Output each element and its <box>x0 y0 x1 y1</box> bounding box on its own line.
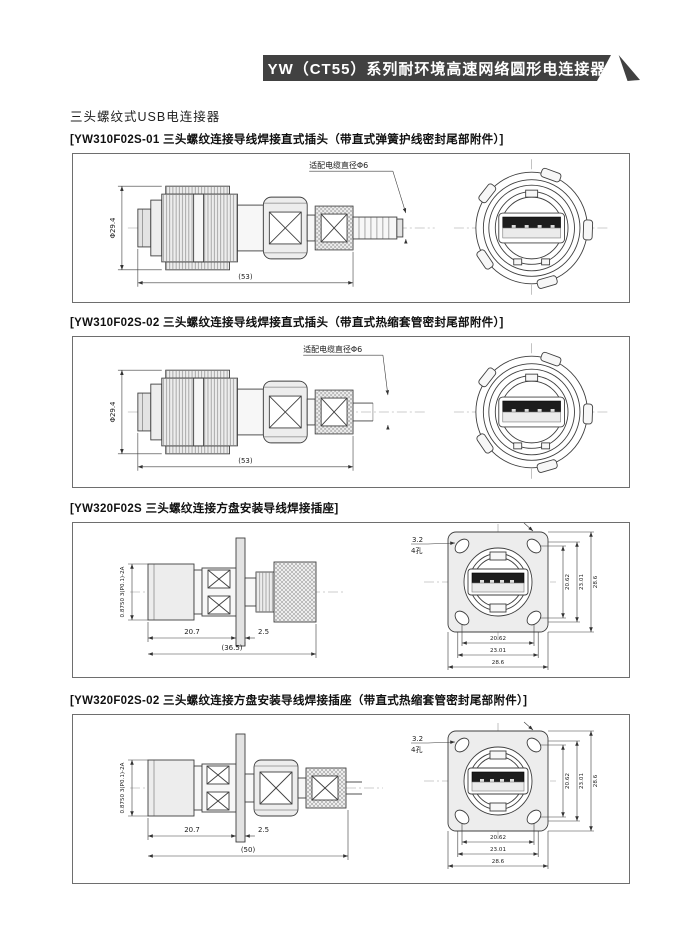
series-banner-tip-decoration <box>614 55 640 81</box>
cable-spring-tail <box>353 217 403 239</box>
length-dimensions: 20.7 2.5 (36.5) <box>148 622 316 658</box>
hole-diameter-label: 3.2 <box>412 536 423 544</box>
yw310f02s-02-front-view-drawing <box>442 337 621 487</box>
usb-receptacle <box>468 569 528 595</box>
overall-length-label: (50) <box>241 846 256 854</box>
usb-receptacle <box>498 213 564 243</box>
section-heading-yw310f02s-02: [YW310F02S-02 三头螺纹连接导线焊接直式插头（带直式热缩套管密封尾部… <box>70 314 504 330</box>
cable-note-label: 适配电缆直径Φ6 <box>309 160 368 170</box>
front-length-label: 20.7 <box>184 628 200 636</box>
flange-width-dim-1: 20.62 <box>490 636 506 642</box>
flange-height-dim-2: 23.01 <box>579 574 585 590</box>
flange-thickness-label: 2.5 <box>258 628 269 636</box>
length-label: (53) <box>238 457 253 465</box>
diameter-label: Φ29.4 <box>109 217 117 239</box>
usb-receptacle <box>498 397 564 427</box>
flange-height-dim-1: 20.62 <box>565 574 571 590</box>
section-heading-yw320f02s-02: [YW320F02S-02 三头螺纹连接方盘安装导线焊接插座（带直式热缩套管密封… <box>70 692 527 708</box>
vertical-dimensions: 20.62 23.01 28.6 <box>540 731 599 831</box>
flange-width-dim-2: 23.01 <box>490 648 506 654</box>
yw310f02s-01-side-view-drawing: Φ29.4 (53) 适配电缆直径Φ6 <box>98 153 442 303</box>
flange-height-dim-3: 28.6 <box>593 774 599 787</box>
flange-width-dim-3: 28.6 <box>492 859 505 865</box>
page-subtitle: 三头螺纹式USB电连接器 <box>70 106 220 125</box>
overall-length-label: (36.5) <box>221 644 242 652</box>
cable-note-label: 适配电缆直径Φ6 <box>303 344 362 354</box>
length-dimensions: 20.7 2.5 (50) <box>148 810 348 860</box>
thread-label: 0.8750 3(P0.1)-2A <box>120 762 126 813</box>
hole-diameter-label: 3.2 <box>412 735 423 743</box>
yw310f02s-01-front-view-drawing <box>442 153 621 303</box>
flange-height-dim-1: 20.62 <box>565 773 571 789</box>
section-heading-yw310f02s-01: [YW310F02S-01 三头螺纹连接导线焊接直式插头（带直式弹簧护线密封尾部… <box>70 131 504 147</box>
hole-count-label: 4孔 <box>411 746 422 754</box>
plug-body-profile <box>138 186 353 270</box>
receptacle-body-profile <box>148 538 316 646</box>
usb-receptacle <box>468 768 528 794</box>
drawing-box-yw310f02s-01: Φ29.4 (53) 适配电缆直径Φ6 <box>72 153 630 303</box>
flange-thickness-label: 2.5 <box>258 826 269 834</box>
yw310f02s-02-side-view-drawing: Φ29.4 (53) 适配电缆直径Φ6 <box>98 337 442 487</box>
series-banner: YW（CT55）系列耐环境高速网络圆形电连接器 <box>263 55 611 81</box>
catalog-page: YW（CT55）系列耐环境高速网络圆形电连接器 三头螺纹式USB电连接器 [YW… <box>0 0 700 950</box>
yw320f02s-side-view-drawing: 0.8750 3(P0.1)-2A 20.7 2.5 (36.5) <box>98 522 398 678</box>
diameter-label: Φ29.4 <box>109 401 117 423</box>
flange-width-dim-1: 20.62 <box>490 835 506 841</box>
plug-body-profile <box>138 370 353 454</box>
yw320f02s-front-view-drawing: 3.2 4孔 20.62 23.01 28.6 20.62 23.01 <box>406 522 621 678</box>
thread-label: 0.8750 3(P0.1)-2A <box>120 566 126 617</box>
yw320f02s-02-side-view-drawing: 0.8750 3(P0.1)-2A 20.7 2.5 (50) <box>98 714 398 884</box>
flange-height-dim-2: 23.01 <box>579 773 585 789</box>
front-length-label: 20.7 <box>184 826 200 834</box>
length-label: (53) <box>238 273 253 281</box>
flange-width-dim-3: 28.6 <box>492 660 505 666</box>
series-banner-title: YW（CT55）系列耐环境高速网络圆形电连接器 <box>268 58 607 79</box>
drawing-box-yw320f02s: 0.8750 3(P0.1)-2A 20.7 2.5 (36.5) <box>72 522 630 678</box>
vertical-dimensions: 20.62 23.01 28.6 <box>540 532 599 632</box>
section-heading-yw320f02s: [YW320F02S 三头螺纹连接方盘安装导线焊接插座] <box>70 500 338 516</box>
drawing-box-yw320f02s-02: 0.8750 3(P0.1)-2A 20.7 2.5 (50) <box>72 714 630 884</box>
flange-height-dim-3: 28.6 <box>593 575 599 588</box>
receptacle-body-profile <box>148 734 362 842</box>
drawing-box-yw310f02s-02: Φ29.4 (53) 适配电缆直径Φ6 <box>72 336 630 488</box>
yw320f02s-02-front-view-drawing: 3.2 4孔 20.62 23.01 28.6 20.62 23.01 <box>406 721 621 877</box>
flange-width-dim-2: 23.01 <box>490 847 506 853</box>
hole-count-label: 4孔 <box>411 547 422 555</box>
